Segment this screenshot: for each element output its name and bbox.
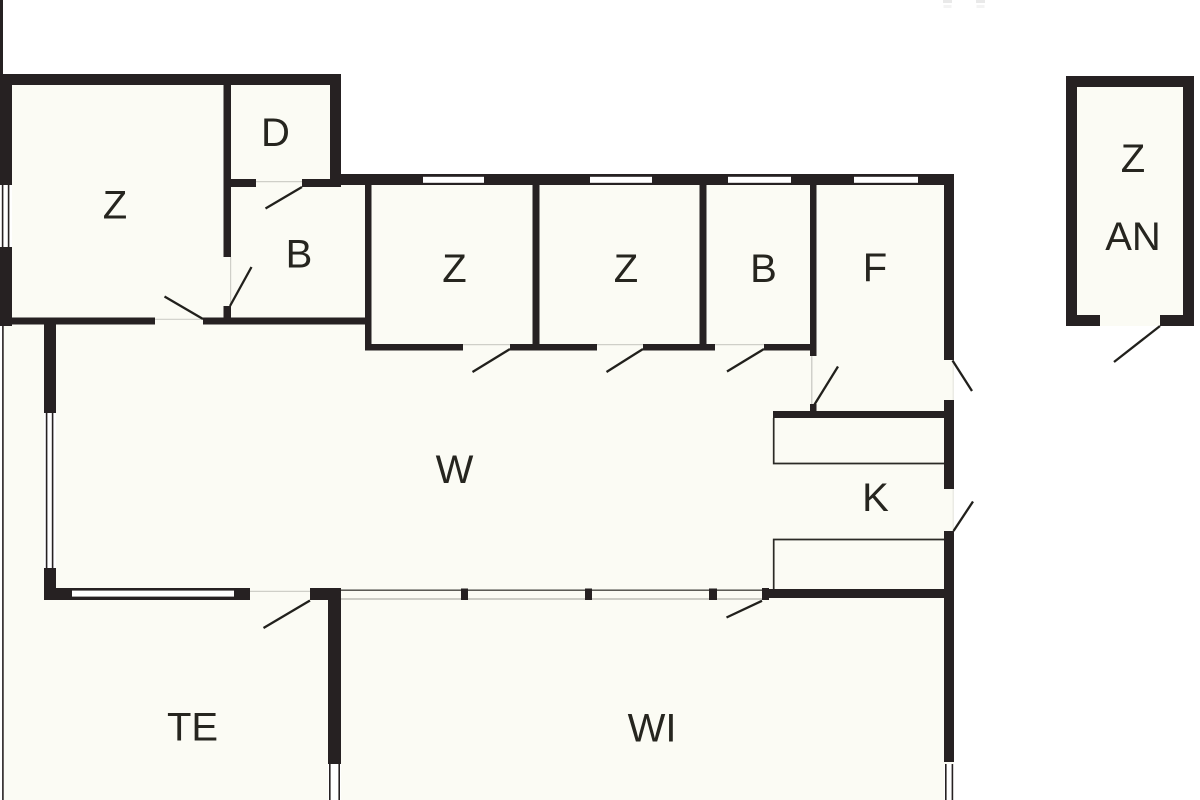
svg-text:B: B (286, 233, 313, 277)
svg-text:W: W (436, 448, 474, 492)
svg-text:AN: AN (1105, 215, 1161, 259)
svg-text:WI: WI (628, 707, 677, 751)
svg-text:Z: Z (442, 247, 466, 291)
svg-text:TE: TE (167, 706, 218, 750)
svg-text:Z: Z (614, 247, 638, 291)
svg-text:F: F (863, 246, 887, 290)
svg-text:K: K (862, 476, 889, 520)
svg-text:Z: Z (1121, 137, 1145, 181)
svg-text:D: D (261, 111, 290, 155)
svg-text:Z: Z (103, 184, 127, 228)
svg-text:B: B (750, 247, 777, 291)
